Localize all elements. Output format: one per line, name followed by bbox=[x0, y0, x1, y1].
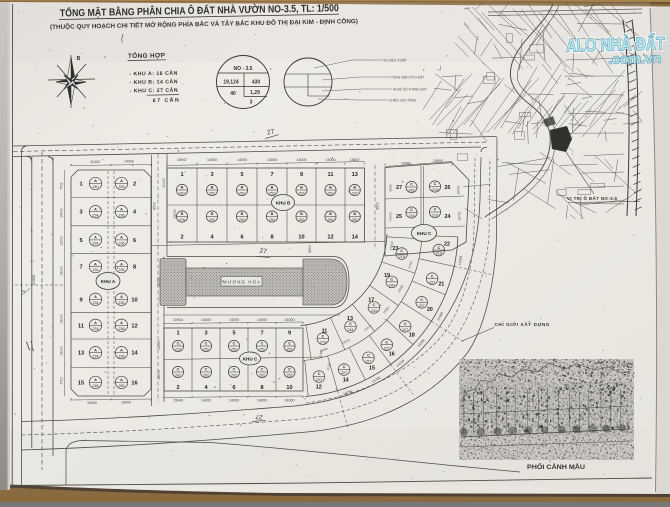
svg-text:30851: 30851 bbox=[456, 185, 461, 194]
svg-text:15: 15 bbox=[369, 365, 375, 371]
svg-text:.com.vn: .com.vn bbox=[608, 51, 661, 67]
svg-text:7710: 7710 bbox=[60, 377, 64, 385]
svg-text:C: C bbox=[343, 365, 346, 369]
svg-text:C: C bbox=[410, 208, 413, 212]
svg-text:219: 219 bbox=[399, 255, 405, 259]
svg-text:C: C bbox=[233, 368, 236, 372]
svg-text:C: C bbox=[318, 372, 321, 376]
svg-text:C: C bbox=[367, 353, 370, 357]
svg-text:19: 19 bbox=[384, 273, 390, 279]
svg-text:C: C bbox=[177, 368, 180, 372]
svg-text:B: B bbox=[181, 186, 184, 190]
svg-text:10: 10 bbox=[298, 235, 304, 241]
svg-text:KHU A: KHU A bbox=[101, 279, 116, 284]
svg-text:A: A bbox=[120, 207, 123, 211]
svg-text:16: 16 bbox=[131, 380, 137, 386]
svg-text:B: B bbox=[241, 212, 244, 216]
svg-text:25: 25 bbox=[396, 214, 402, 220]
svg-text:67 CĂN: 67 CĂN bbox=[153, 97, 179, 104]
svg-text:C: C bbox=[385, 340, 388, 344]
svg-text:C: C bbox=[205, 342, 208, 346]
svg-text:18: 18 bbox=[409, 332, 415, 338]
svg-text:14000: 14000 bbox=[297, 158, 307, 162]
svg-text:13000: 13000 bbox=[173, 209, 177, 219]
svg-text:2: 2 bbox=[180, 235, 183, 241]
svg-text:252: 252 bbox=[239, 192, 245, 196]
svg-text:C: C bbox=[233, 342, 236, 346]
svg-text:27: 27 bbox=[255, 413, 263, 421]
svg-text:15: 15 bbox=[78, 380, 84, 386]
svg-text:C: C bbox=[437, 246, 440, 250]
svg-text:14000: 14000 bbox=[201, 399, 211, 403]
svg-text:B: B bbox=[211, 186, 214, 190]
svg-text:252: 252 bbox=[239, 218, 245, 222]
svg-text:227: 227 bbox=[341, 371, 347, 375]
svg-text:297: 297 bbox=[352, 192, 358, 196]
svg-text:13000: 13000 bbox=[60, 346, 64, 356]
svg-text:240: 240 bbox=[93, 185, 99, 189]
svg-text:430: 430 bbox=[252, 80, 261, 86]
svg-text:A: A bbox=[120, 348, 123, 352]
svg-text:C: C bbox=[420, 298, 423, 302]
svg-text:227: 227 bbox=[384, 346, 390, 350]
svg-text:287: 287 bbox=[175, 374, 181, 378]
svg-text:C: C bbox=[434, 182, 437, 186]
svg-text:14: 14 bbox=[131, 351, 138, 357]
svg-text:9: 9 bbox=[300, 172, 303, 178]
svg-text:27: 27 bbox=[396, 185, 402, 191]
svg-text:30761: 30761 bbox=[457, 211, 462, 220]
svg-text:14000: 14000 bbox=[257, 318, 267, 322]
svg-text:234: 234 bbox=[93, 354, 99, 358]
svg-text:8: 8 bbox=[260, 385, 263, 391]
svg-text:- KHU A: 16 CĂN: - KHU A: 16 CĂN bbox=[129, 70, 177, 78]
svg-text:B: B bbox=[329, 212, 332, 216]
svg-text:3: 3 bbox=[204, 331, 207, 337]
svg-text:13000: 13000 bbox=[157, 370, 161, 380]
svg-text:14000: 14000 bbox=[237, 158, 247, 162]
svg-text:B: B bbox=[241, 186, 244, 190]
svg-text:287: 287 bbox=[179, 192, 185, 196]
svg-text:234: 234 bbox=[93, 327, 99, 331]
svg-text:8: 8 bbox=[133, 265, 136, 271]
svg-text:11: 11 bbox=[328, 172, 334, 178]
svg-text:C: C bbox=[288, 342, 291, 346]
svg-text:13: 13 bbox=[347, 316, 353, 322]
svg-text:14000: 14000 bbox=[229, 318, 239, 322]
svg-text:B: B bbox=[353, 212, 356, 216]
svg-text:22: 22 bbox=[444, 242, 450, 248]
svg-text:5: 5 bbox=[232, 331, 235, 337]
svg-text:13: 13 bbox=[78, 351, 84, 357]
svg-text:14000: 14000 bbox=[207, 158, 217, 162]
svg-text:- KHU C: 27 CĂN: - KHU C: 27 CĂN bbox=[130, 87, 178, 95]
svg-text:24: 24 bbox=[445, 214, 451, 220]
svg-text:C: C bbox=[261, 368, 264, 372]
svg-text:227: 227 bbox=[365, 359, 371, 363]
svg-text:244: 244 bbox=[371, 309, 377, 313]
svg-text:11000: 11000 bbox=[90, 160, 100, 164]
svg-text:252: 252 bbox=[203, 374, 209, 378]
svg-text:18000: 18000 bbox=[121, 401, 131, 405]
svg-text:252: 252 bbox=[231, 374, 237, 378]
svg-text:A: A bbox=[94, 321, 97, 325]
svg-text:14000: 14000 bbox=[267, 158, 277, 162]
svg-text:14000: 14000 bbox=[257, 399, 267, 403]
svg-text:7: 7 bbox=[79, 265, 82, 271]
svg-text:216: 216 bbox=[409, 214, 415, 218]
svg-text:21500: 21500 bbox=[32, 275, 36, 286]
svg-text:TỔNG DIỆN TÍCH ĐẤT: TỔNG DIỆN TÍCH ĐẤT bbox=[391, 75, 424, 80]
svg-text:15947: 15947 bbox=[350, 158, 360, 162]
svg-text:8: 8 bbox=[270, 235, 273, 241]
svg-text:335: 335 bbox=[119, 185, 125, 189]
svg-text:252: 252 bbox=[352, 218, 358, 222]
svg-text:1: 1 bbox=[79, 182, 82, 188]
svg-text:B: B bbox=[77, 56, 81, 62]
svg-text:234: 234 bbox=[93, 213, 99, 217]
svg-text:CHIỀU CAO TẦNG: CHIỀU CAO TẦNG bbox=[389, 98, 417, 103]
svg-text:236: 236 bbox=[119, 242, 125, 246]
svg-text:27: 27 bbox=[259, 248, 268, 256]
svg-text:C: C bbox=[400, 249, 403, 253]
svg-text:9: 9 bbox=[288, 331, 291, 337]
svg-text:227: 227 bbox=[402, 328, 408, 332]
svg-text:20: 20 bbox=[427, 307, 433, 313]
svg-text:10: 10 bbox=[286, 385, 292, 391]
svg-text:7: 7 bbox=[260, 331, 263, 337]
svg-text:A: A bbox=[120, 236, 123, 240]
svg-text:244: 244 bbox=[348, 328, 354, 332]
svg-text:KHU B: KHU B bbox=[276, 200, 291, 205]
svg-text:2: 2 bbox=[133, 182, 136, 188]
svg-text:- KHU B: 14 CĂN: - KHU B: 14 CĂN bbox=[129, 78, 177, 86]
svg-text:5: 5 bbox=[79, 238, 82, 244]
svg-text:CHỈ GIỚI XÂY DỰNG: CHỈ GIỚI XÂY DỰNG bbox=[495, 320, 550, 327]
svg-text:14000: 14000 bbox=[201, 318, 211, 322]
svg-text:C: C bbox=[321, 334, 324, 338]
svg-text:A: A bbox=[94, 262, 97, 266]
svg-text:252: 252 bbox=[269, 218, 275, 222]
svg-text:3: 3 bbox=[210, 172, 213, 178]
svg-text:26: 26 bbox=[445, 185, 451, 191]
svg-text:14075: 14075 bbox=[388, 212, 393, 221]
svg-text:14: 14 bbox=[352, 235, 359, 241]
svg-text:13: 13 bbox=[352, 172, 358, 178]
svg-text:C: C bbox=[434, 208, 437, 212]
svg-text:234: 234 bbox=[93, 242, 99, 246]
svg-text:KHU C: KHU C bbox=[417, 231, 432, 236]
svg-text:14000: 14000 bbox=[285, 318, 295, 322]
svg-text:13000: 13000 bbox=[60, 314, 64, 324]
svg-text:C: C bbox=[390, 278, 393, 282]
svg-text:219: 219 bbox=[432, 188, 438, 192]
svg-text:13000: 13000 bbox=[157, 277, 161, 287]
svg-text:B: B bbox=[181, 212, 184, 216]
svg-text:6: 6 bbox=[232, 385, 235, 391]
svg-text:234: 234 bbox=[93, 301, 99, 305]
svg-text:A: A bbox=[94, 179, 97, 183]
svg-text:NO - 3.5: NO - 3.5 bbox=[234, 66, 253, 72]
svg-text:C: C bbox=[404, 322, 407, 326]
svg-text:21: 21 bbox=[438, 282, 444, 288]
svg-text:19,124: 19,124 bbox=[223, 80, 239, 86]
svg-text:B: B bbox=[300, 186, 303, 190]
svg-text:B: B bbox=[271, 212, 274, 216]
svg-text:14: 14 bbox=[343, 378, 349, 384]
svg-text:227: 227 bbox=[429, 280, 435, 284]
svg-text:C: C bbox=[431, 274, 434, 278]
svg-text:252: 252 bbox=[328, 192, 334, 196]
svg-text:B: B bbox=[329, 186, 332, 190]
svg-text:1: 1 bbox=[176, 331, 179, 337]
svg-text:13000: 13000 bbox=[60, 266, 64, 276]
svg-text:14000: 14000 bbox=[326, 158, 336, 162]
svg-text:B: B bbox=[300, 212, 303, 216]
svg-text:16: 16 bbox=[389, 352, 395, 358]
svg-text:C: C bbox=[205, 368, 208, 372]
svg-text:5: 5 bbox=[240, 172, 243, 178]
svg-text:10944: 10944 bbox=[173, 318, 183, 322]
svg-text:7711: 7711 bbox=[60, 182, 64, 189]
svg-text:14000: 14000 bbox=[229, 399, 239, 403]
svg-text:SỐ HIỆU Ô ĐẤT: SỐ HIỆU Ô ĐẤT bbox=[383, 58, 407, 63]
svg-text:236: 236 bbox=[119, 327, 125, 331]
svg-text:8500: 8500 bbox=[376, 202, 380, 210]
svg-text:252: 252 bbox=[299, 192, 305, 196]
svg-text:252: 252 bbox=[259, 348, 265, 352]
svg-text:11: 11 bbox=[78, 323, 84, 329]
svg-text:12: 12 bbox=[316, 385, 322, 391]
svg-text:292: 292 bbox=[209, 218, 215, 222]
svg-text:C: C bbox=[373, 303, 376, 307]
svg-text:13000: 13000 bbox=[433, 159, 443, 163]
svg-text:248: 248 bbox=[93, 384, 99, 388]
svg-text:236: 236 bbox=[119, 301, 125, 305]
svg-text:2: 2 bbox=[176, 385, 179, 391]
svg-text:278: 278 bbox=[320, 340, 326, 344]
svg-text:283: 283 bbox=[409, 189, 415, 193]
svg-text:A: A bbox=[120, 378, 123, 382]
svg-text:10000: 10000 bbox=[87, 401, 97, 405]
svg-text:6: 6 bbox=[240, 235, 243, 241]
svg-text:A: A bbox=[94, 348, 97, 352]
svg-text:A: A bbox=[94, 207, 97, 211]
svg-text:236: 236 bbox=[119, 213, 125, 217]
svg-text:10: 10 bbox=[131, 297, 137, 303]
svg-text:219: 219 bbox=[436, 252, 442, 256]
svg-text:219: 219 bbox=[432, 214, 438, 218]
svg-text:10000: 10000 bbox=[401, 162, 411, 166]
svg-text:3: 3 bbox=[79, 210, 82, 216]
svg-text:C: C bbox=[261, 342, 264, 346]
svg-text:252: 252 bbox=[259, 374, 265, 378]
svg-text:C: C bbox=[410, 183, 413, 187]
svg-text:12: 12 bbox=[131, 323, 137, 329]
svg-text:252: 252 bbox=[231, 348, 237, 352]
svg-text:6: 6 bbox=[133, 238, 136, 244]
svg-text:A: A bbox=[120, 179, 123, 183]
svg-text:B: B bbox=[353, 186, 356, 190]
svg-text:40: 40 bbox=[230, 91, 236, 97]
svg-text:252: 252 bbox=[299, 218, 305, 222]
svg-text:MƯƠNG HÓA: MƯƠNG HÓA bbox=[223, 280, 260, 285]
svg-text:14000: 14000 bbox=[60, 208, 64, 218]
svg-text:265: 265 bbox=[119, 384, 125, 388]
svg-text:15947: 15947 bbox=[177, 158, 187, 162]
svg-text:A: A bbox=[94, 295, 97, 299]
svg-text:C: C bbox=[288, 368, 291, 372]
svg-text:234: 234 bbox=[93, 268, 99, 272]
svg-text:15940: 15940 bbox=[173, 399, 183, 403]
svg-text:8500: 8500 bbox=[153, 202, 157, 210]
svg-text:A: A bbox=[120, 321, 123, 325]
svg-text:17: 17 bbox=[368, 297, 374, 303]
svg-text:3: 3 bbox=[250, 100, 253, 106]
svg-text:276: 276 bbox=[179, 218, 185, 222]
svg-text:A: A bbox=[120, 262, 123, 266]
svg-text:236: 236 bbox=[119, 268, 125, 272]
svg-text:14000: 14000 bbox=[285, 399, 295, 403]
svg-text:7: 7 bbox=[270, 172, 273, 178]
svg-text:219: 219 bbox=[175, 348, 181, 352]
svg-text:12: 12 bbox=[327, 235, 333, 241]
svg-text:244: 244 bbox=[389, 283, 395, 287]
svg-text:C: C bbox=[349, 322, 352, 326]
svg-text:11: 11 bbox=[322, 328, 328, 334]
svg-text:227: 227 bbox=[419, 304, 425, 308]
svg-text:227: 227 bbox=[316, 378, 322, 382]
svg-text:1,29: 1,29 bbox=[250, 90, 260, 96]
svg-text:8500: 8500 bbox=[308, 245, 312, 253]
svg-text:C: C bbox=[177, 342, 180, 346]
svg-text:B: B bbox=[271, 186, 274, 190]
svg-text:252: 252 bbox=[269, 192, 275, 196]
svg-text:PHỐI CẢNH MẪU: PHỐI CẢNH MẪU bbox=[527, 464, 586, 471]
svg-text:252: 252 bbox=[209, 192, 215, 196]
svg-text:KHU C: KHU C bbox=[243, 356, 258, 361]
svg-text:A: A bbox=[94, 236, 97, 240]
svg-text:236: 236 bbox=[119, 354, 125, 358]
svg-text:252: 252 bbox=[287, 348, 293, 352]
svg-text:252: 252 bbox=[287, 374, 293, 378]
svg-text:VỊ TRÍ Ô ĐẤT NO-3.5: VỊ TRÍ Ô ĐẤT NO-3.5 bbox=[567, 196, 618, 201]
svg-text:A: A bbox=[94, 378, 97, 382]
svg-text:252: 252 bbox=[203, 348, 209, 352]
svg-text:10000: 10000 bbox=[162, 178, 166, 188]
svg-text:B: B bbox=[211, 212, 214, 216]
svg-text:13000: 13000 bbox=[157, 340, 161, 350]
svg-text:NGHỆ SỐ THANG ĐẤT: NGHỆ SỐ THANG ĐẤT bbox=[393, 87, 427, 92]
svg-text:1: 1 bbox=[180, 172, 183, 178]
svg-text:252: 252 bbox=[328, 218, 334, 222]
svg-text:9: 9 bbox=[79, 297, 82, 303]
svg-text:12000: 12000 bbox=[60, 236, 64, 246]
svg-text:A: A bbox=[120, 295, 123, 299]
svg-text:14000: 14000 bbox=[124, 160, 134, 164]
svg-text:23: 23 bbox=[393, 246, 399, 252]
